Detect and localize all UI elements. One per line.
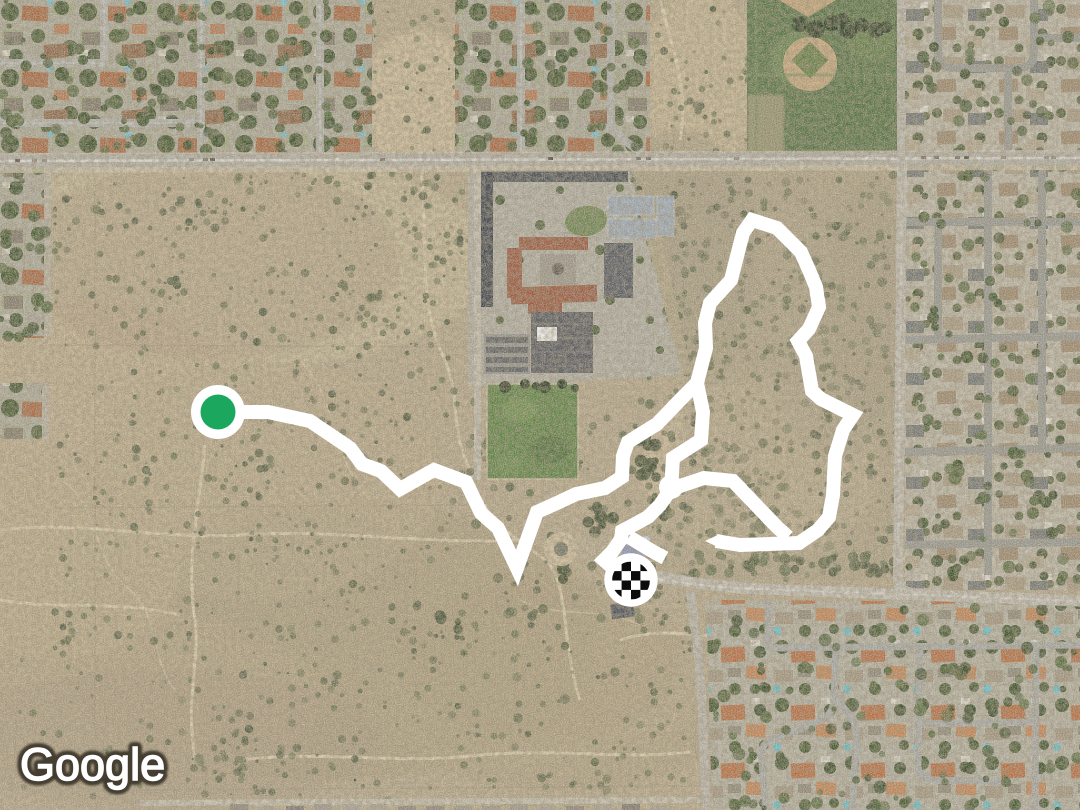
svg-text:Google: Google xyxy=(20,739,165,790)
